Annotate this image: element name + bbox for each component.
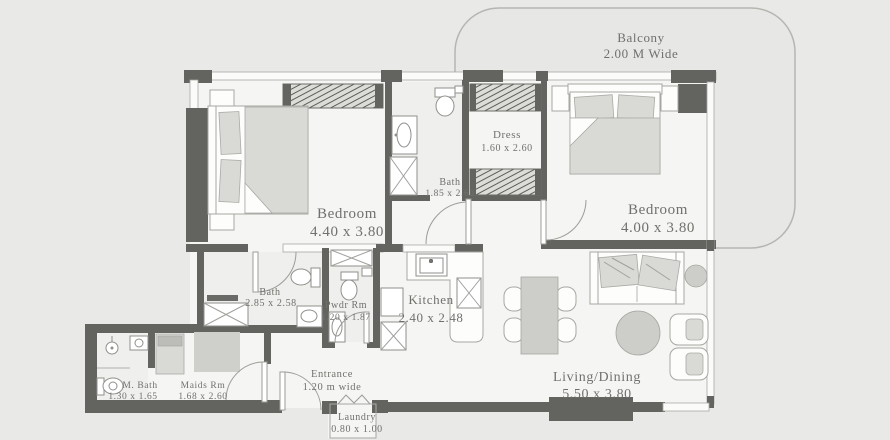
maids-rug <box>194 332 240 372</box>
kitchen-sink-icon <box>416 254 447 276</box>
floor-plan-drawing: Balcony 2.00 M Wide Bedroom 4.40 x 3.80 … <box>0 0 890 440</box>
maids-dims: 1.68 x 2.60 <box>178 392 227 402</box>
entrance-dims: 1.20 m wide <box>303 382 362 393</box>
shower-icon <box>390 157 417 195</box>
sink-icon <box>297 306 322 327</box>
bedroom-right-label: Bedroom <box>628 202 688 218</box>
dress-label: Dress <box>493 129 521 141</box>
sink-icon <box>392 116 417 154</box>
armchair-icon <box>670 348 708 380</box>
floor-plan-page: Balcony 2.00 M Wide Bedroom 4.40 x 3.80 … <box>0 0 890 440</box>
wardrobe-bedroom-left <box>283 84 383 108</box>
kitchen-dims: 2.40 x 2.48 <box>398 310 463 325</box>
toilet-icon <box>291 268 320 287</box>
sink-icon <box>130 336 148 350</box>
coffee-table-icon <box>616 311 660 355</box>
shower-icon <box>204 303 248 326</box>
laundry-dims: 0.80 x 1.00 <box>331 424 383 435</box>
toilet-icon <box>435 88 455 116</box>
living-label: Living/Dining <box>553 370 641 385</box>
maids-label: Maids Rm <box>181 381 226 391</box>
bed-left-icon <box>208 90 308 230</box>
bedroom-left-label: Bedroom <box>317 206 377 222</box>
laundry-label: Laundry <box>338 412 376 423</box>
balcony-label: Balcony <box>617 30 665 45</box>
closet-icon <box>331 250 372 266</box>
dress-dims: 1.60 x 2.60 <box>481 143 533 154</box>
maid-bath-dims: 1.30 x 1.65 <box>108 392 157 402</box>
sofa-icon <box>590 252 684 304</box>
powder-dims: 1.20 x 1.87 <box>321 313 370 323</box>
maid-bath-label: M. Bath <box>122 381 157 391</box>
bath-master-label: Bath <box>259 287 280 298</box>
side-table-icon <box>685 265 707 287</box>
living-dims: 5.50 x 3.80 <box>562 387 632 402</box>
entrance-label: Entrance <box>311 369 353 380</box>
bedroom-left-dims: 4.40 x 3.80 <box>310 224 384 240</box>
wardrobe-dress-top <box>470 84 541 111</box>
fridge-icon <box>457 278 481 308</box>
bedroom-right-dims: 4.00 x 3.80 <box>621 220 695 236</box>
powder-label: Pwdr Rm <box>325 300 367 311</box>
toilet-icon <box>341 272 358 300</box>
bath-master-dims: 2.85 x 2.58 <box>245 298 297 309</box>
cabinet-icon <box>381 322 406 350</box>
bath-top-dims: 1.85 x 2.60 <box>425 189 474 199</box>
balcony-dims: 2.00 M Wide <box>604 46 679 61</box>
dining-table-icon <box>521 277 558 354</box>
armchair-icon <box>670 314 708 345</box>
kitchen-label: Kitchen <box>408 292 453 307</box>
bath-top-label: Bath <box>439 177 460 188</box>
wardrobe-dress-bottom <box>470 169 541 195</box>
bed-right-icon <box>552 84 678 174</box>
